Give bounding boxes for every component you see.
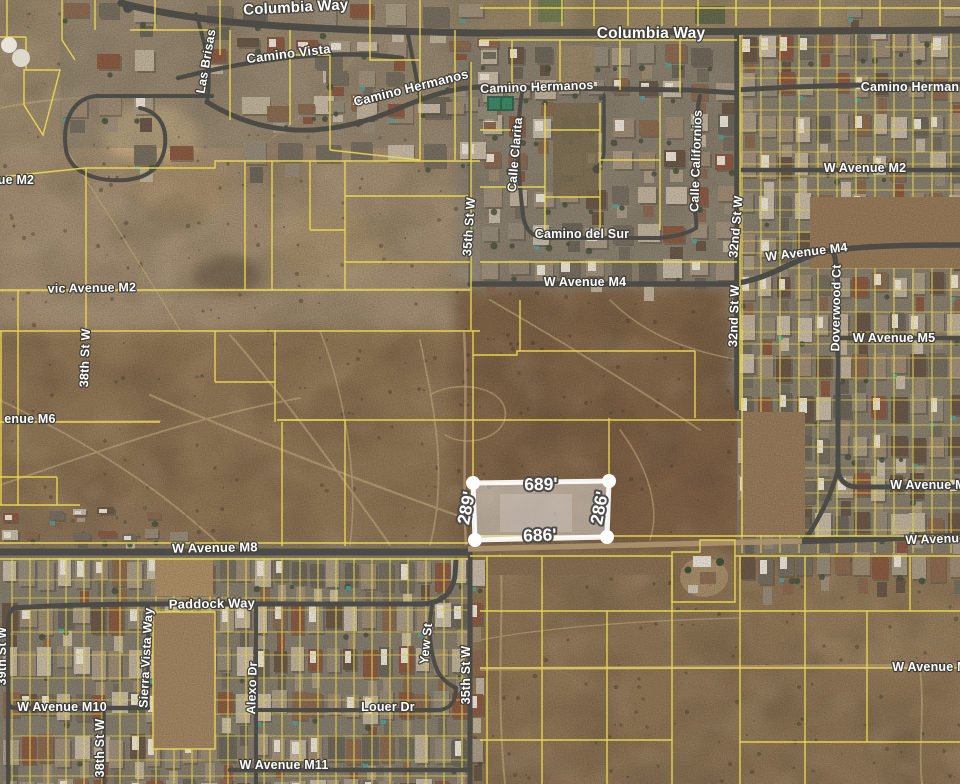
svg-text:W Avenue: W Avenue (905, 531, 960, 547)
svg-text:enue M6: enue M6 (4, 412, 55, 426)
svg-text:686': 686' (523, 524, 557, 545)
svg-text:689': 689' (524, 474, 558, 495)
svg-text:38th St W: 38th St W (93, 719, 107, 778)
svg-text:W Avenue M: W Avenue M (892, 660, 960, 674)
svg-text:W Avenue M11: W Avenue M11 (240, 758, 329, 772)
svg-text:Camino Herman: Camino Herman (861, 80, 959, 94)
svg-text:Paddock Way: Paddock Way (169, 595, 256, 612)
svg-text:W Avenue M8: W Avenue M8 (172, 539, 258, 555)
svg-text:W Avenue M5: W Avenue M5 (853, 331, 936, 345)
svg-text:vic Avenue M2: vic Avenue M2 (48, 280, 137, 296)
svg-text:ue M2: ue M2 (0, 173, 34, 187)
svg-text:W Avenue M10: W Avenue M10 (17, 700, 107, 714)
svg-text:Alexo Dr: Alexo Dr (244, 661, 260, 714)
svg-text:39th St W: 39th St W (0, 627, 9, 686)
svg-text:Camino del Sur: Camino del Sur (535, 227, 629, 241)
svg-text:W Avenue M: W Avenue M (890, 478, 960, 492)
svg-text:Columbia Way: Columbia Way (597, 25, 706, 42)
svg-text:Louer Dr: Louer Dr (361, 700, 415, 714)
svg-text:W Avenue M4: W Avenue M4 (544, 275, 627, 289)
svg-text:Doverwood Ct: Doverwood Ct (828, 264, 844, 352)
svg-text:W Avenue M2: W Avenue M2 (824, 161, 907, 175)
svg-text:32nd St W: 32nd St W (726, 285, 742, 348)
svg-text:38th St W: 38th St W (77, 328, 93, 387)
svg-text:35th St W: 35th St W (459, 646, 473, 705)
